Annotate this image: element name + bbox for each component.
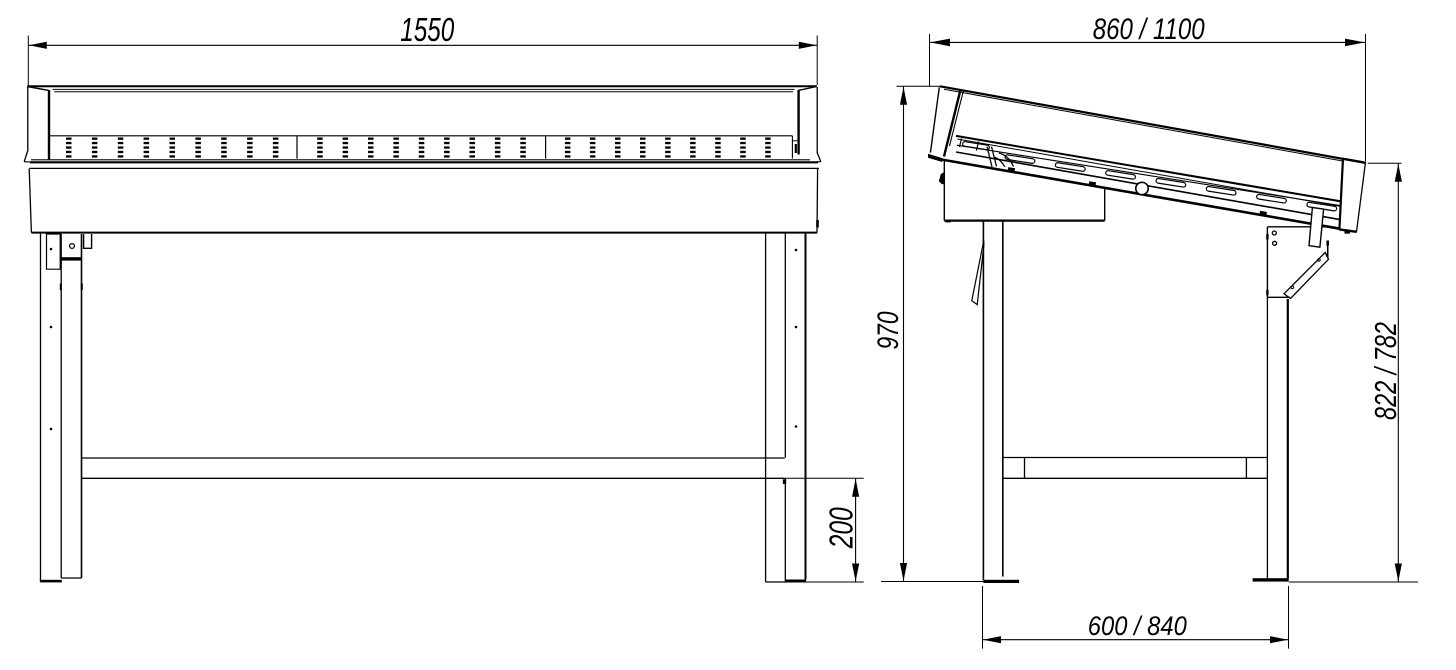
- svg-text:970: 970: [872, 311, 905, 349]
- svg-text:600 / 840: 600 / 840: [1088, 610, 1187, 641]
- svg-text:860 / 1100: 860 / 1100: [1093, 13, 1205, 46]
- svg-text:200: 200: [823, 507, 860, 549]
- svg-text:1550: 1550: [400, 12, 454, 49]
- svg-text:822 / 782: 822 / 782: [1368, 322, 1403, 420]
